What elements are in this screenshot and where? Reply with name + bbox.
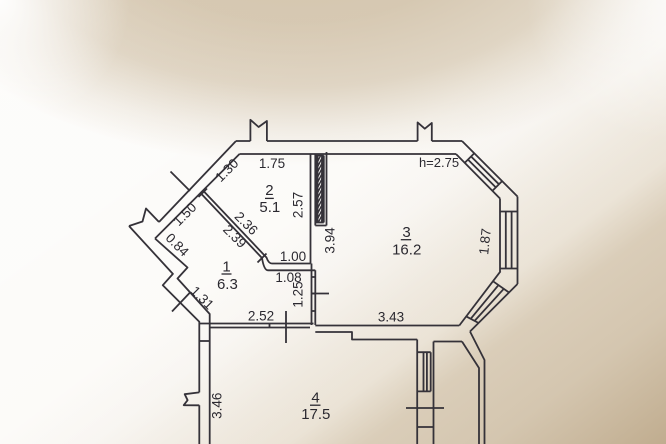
svg-text:17.5: 17.5 <box>301 406 330 423</box>
svg-text:1.87: 1.87 <box>476 228 494 256</box>
svg-text:2.57: 2.57 <box>291 192 306 218</box>
svg-text:1.00: 1.00 <box>280 249 306 264</box>
svg-text:16.2: 16.2 <box>392 242 421 259</box>
svg-text:3.94: 3.94 <box>322 227 337 254</box>
svg-text:1.25: 1.25 <box>291 281 306 307</box>
svg-text:2.52: 2.52 <box>248 309 274 324</box>
svg-text:3: 3 <box>402 224 410 241</box>
svg-text:2: 2 <box>265 182 273 199</box>
svg-text:3.43: 3.43 <box>378 310 404 325</box>
svg-text:h=2.75: h=2.75 <box>419 155 459 170</box>
svg-text:6.3: 6.3 <box>217 276 238 293</box>
svg-text:1.75: 1.75 <box>259 156 285 171</box>
svg-text:3.46: 3.46 <box>210 393 225 419</box>
svg-text:5.1: 5.1 <box>259 199 280 216</box>
svg-text:1: 1 <box>222 259 230 276</box>
svg-text:4: 4 <box>311 390 319 407</box>
